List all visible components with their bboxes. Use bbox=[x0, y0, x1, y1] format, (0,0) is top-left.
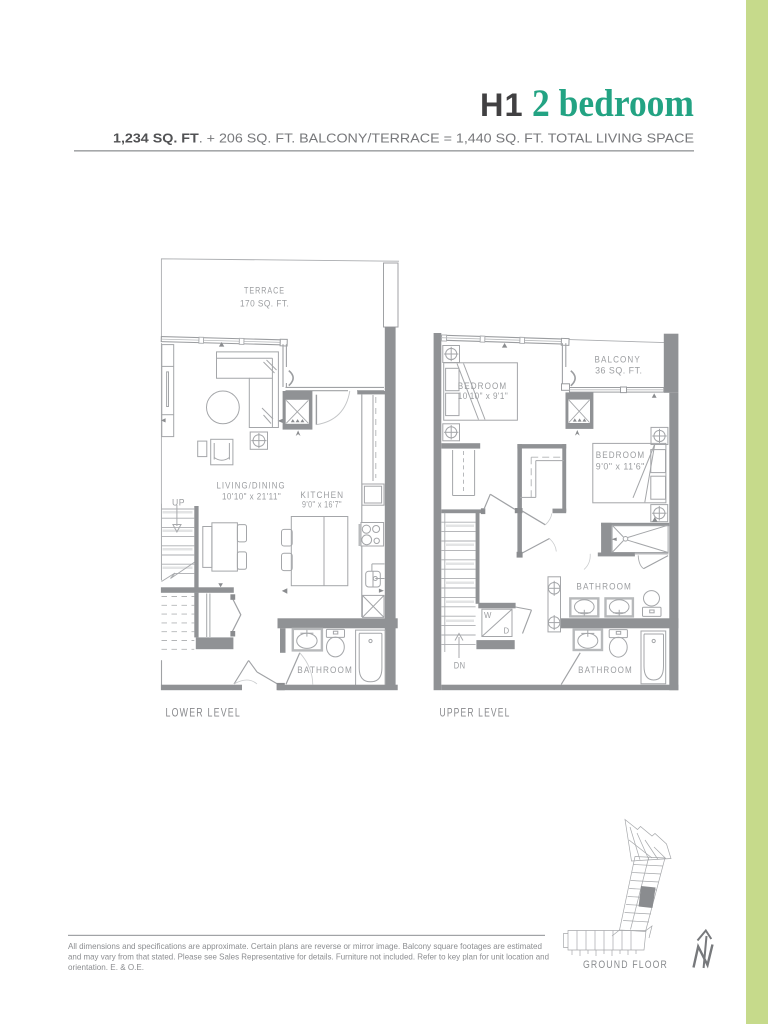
svg-text:10'10" x 21'11": 10'10" x 21'11" bbox=[222, 491, 281, 501]
svg-text:BATHROOM: BATHROOM bbox=[576, 582, 632, 592]
svg-text:LIVING/DINING: LIVING/DINING bbox=[217, 480, 286, 490]
svg-text:2 bedroom: 2 bedroom bbox=[532, 82, 694, 125]
svg-text:9'0" x 16'7": 9'0" x 16'7" bbox=[302, 500, 342, 510]
svg-text:9'0" x 11'6": 9'0" x 11'6" bbox=[596, 462, 645, 472]
svg-text:W: W bbox=[484, 611, 492, 620]
svg-text:H1: H1 bbox=[480, 87, 524, 123]
svg-text:GROUND FLOOR: GROUND FLOOR bbox=[583, 959, 668, 971]
svg-text:BALCONY: BALCONY bbox=[595, 354, 641, 364]
svg-text:KITCHEN: KITCHEN bbox=[300, 490, 344, 500]
svg-text:BATHROOM: BATHROOM bbox=[578, 665, 633, 675]
svg-text:TERRACE: TERRACE bbox=[244, 286, 285, 296]
svg-text:UP: UP bbox=[172, 498, 185, 508]
svg-text:BEDROOM: BEDROOM bbox=[458, 381, 508, 391]
svg-text:BEDROOM: BEDROOM bbox=[596, 450, 646, 460]
svg-text:BATHROOM: BATHROOM bbox=[297, 665, 353, 675]
svg-text:UPPER LEVEL: UPPER LEVEL bbox=[440, 706, 511, 720]
svg-text:and may vary from that stated.: and may vary from that stated. Please se… bbox=[68, 953, 549, 962]
svg-text:orientation. E. & O.E.: orientation. E. & O.E. bbox=[68, 963, 144, 972]
svg-text:D: D bbox=[504, 627, 510, 636]
svg-text:10'10" x 9'1": 10'10" x 9'1" bbox=[458, 391, 509, 401]
svg-text:36 SQ. FT.: 36 SQ. FT. bbox=[595, 366, 642, 376]
svg-text:LOWER LEVEL: LOWER LEVEL bbox=[166, 706, 242, 720]
svg-text:170 SQ. FT.: 170 SQ. FT. bbox=[240, 298, 289, 308]
svg-text:DN: DN bbox=[454, 660, 466, 670]
svg-text:All dimensions and specificati: All dimensions and specifications are ap… bbox=[68, 942, 542, 951]
svg-text:1,234 SQ. FT. + 206 SQ. FT. BA: 1,234 SQ. FT. + 206 SQ. FT. BALCONY/TERR… bbox=[113, 131, 694, 146]
